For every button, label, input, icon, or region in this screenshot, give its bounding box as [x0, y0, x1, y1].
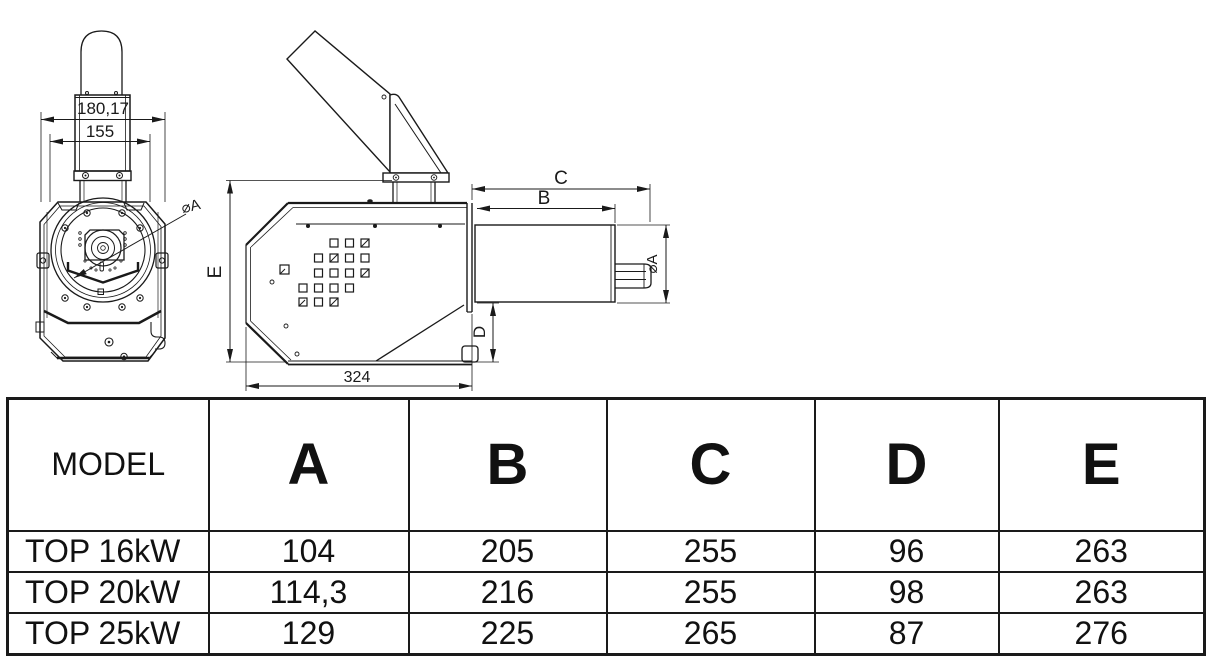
table-row: TOP 16kW 104 205 255 96 263 — [8, 531, 1205, 572]
dim-e: E — [205, 266, 226, 279]
value-a: 104 — [209, 531, 409, 572]
table-row: TOP 25kW 129 225 265 87 276 — [8, 613, 1205, 655]
value-b: 216 — [409, 572, 607, 613]
value-e: 263 — [999, 572, 1205, 613]
dim-diameter-side: ⌀A — [644, 254, 661, 273]
value-c: 255 — [607, 531, 815, 572]
vent-grid — [280, 239, 369, 306]
dim-diameter-front: ⌀A — [180, 196, 203, 217]
dim-c: C — [554, 168, 568, 189]
column-header-a: A — [209, 399, 409, 531]
column-header-d: D — [815, 399, 999, 531]
model-name: TOP 25kW — [8, 613, 209, 655]
model-name: TOP 20kW — [8, 572, 209, 613]
burner-tube — [475, 225, 615, 302]
dim-d: D — [470, 326, 489, 338]
value-b: 225 — [409, 613, 607, 655]
column-header-e: E — [999, 399, 1205, 531]
feed-tube — [287, 31, 390, 172]
column-header-c: C — [607, 399, 815, 531]
model-name: TOP 16kW — [8, 531, 209, 572]
side-view — [246, 31, 651, 365]
value-c: 265 — [607, 613, 815, 655]
value-a: 129 — [209, 613, 409, 655]
column-header-model: MODEL — [8, 399, 209, 531]
value-c: 255 — [607, 572, 815, 613]
chimney-dome — [81, 31, 122, 95]
spec-table: MODEL A B C D E TOP 16kW 104 205 255 96 … — [6, 397, 1206, 656]
value-d: 96 — [815, 531, 999, 572]
table-header-row: MODEL A B C D E — [8, 399, 1205, 531]
dim-width-inner: 155 — [86, 122, 114, 141]
value-e: 263 — [999, 531, 1205, 572]
column-header-b: B — [409, 399, 607, 531]
value-e: 276 — [999, 613, 1205, 655]
dim-length-total: 324 — [344, 369, 371, 386]
value-b: 205 — [409, 531, 607, 572]
feed-bracket — [390, 94, 448, 173]
technical-drawing: 180,17 155 ⌀A — [0, 0, 1209, 397]
dim-b: B — [538, 188, 551, 209]
pellet-burner-spec-sheet: 180,17 155 ⌀A — [0, 0, 1209, 660]
dim-width-outer: 180,17 — [77, 99, 129, 118]
table-row: TOP 20kW 114,3 216 255 98 263 — [8, 572, 1205, 613]
value-d: 87 — [815, 613, 999, 655]
flame-trough — [68, 262, 138, 283]
value-d: 98 — [815, 572, 999, 613]
value-a: 114,3 — [209, 572, 409, 613]
front-view — [36, 31, 168, 361]
